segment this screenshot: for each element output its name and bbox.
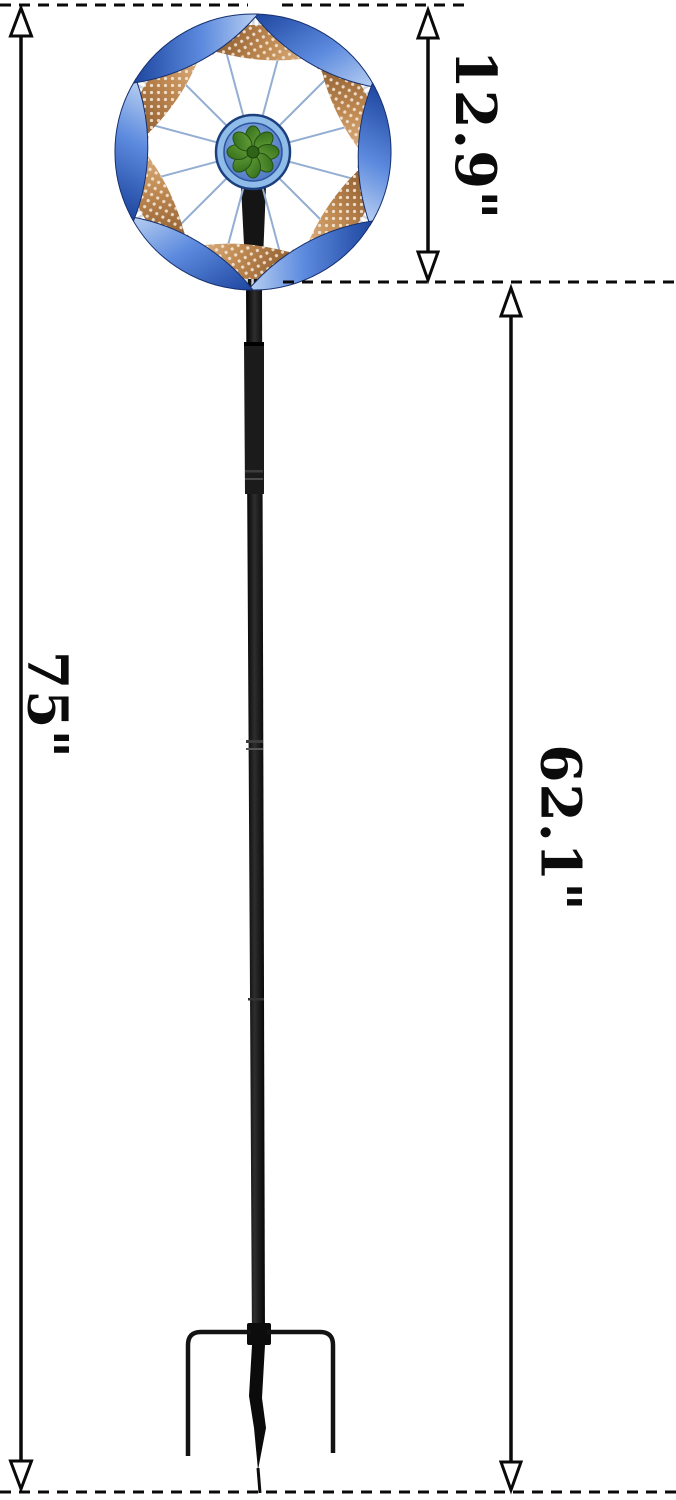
dimension-label-spinner-height: 12.9" — [442, 50, 508, 221]
stake-spike — [249, 1345, 266, 1470]
ground-stake — [188, 1323, 333, 1493]
product-dimension-diagram: 12.9" 75" 62.1" — [0, 0, 676, 1500]
dimension-label-stake-height: 62.1" — [529, 744, 594, 912]
arrowhead-up-icon — [501, 288, 521, 316]
arrowhead-down-icon — [11, 1461, 32, 1489]
dimension-label-total-height: 75" — [16, 651, 81, 759]
stake-prong-left — [188, 1332, 251, 1456]
flower-center-icon — [227, 126, 279, 178]
dimension-line-spinner — [418, 10, 438, 280]
arrowhead-down-icon — [501, 1462, 521, 1490]
arrowhead-down-icon — [418, 252, 438, 280]
dimension-line-stake — [501, 288, 521, 1490]
arrowhead-up-icon — [418, 10, 438, 38]
arrowhead-up-icon — [11, 8, 32, 36]
spinner-head — [73, 0, 434, 327]
stake-prong-right — [267, 1332, 333, 1453]
pole — [241, 186, 266, 1345]
